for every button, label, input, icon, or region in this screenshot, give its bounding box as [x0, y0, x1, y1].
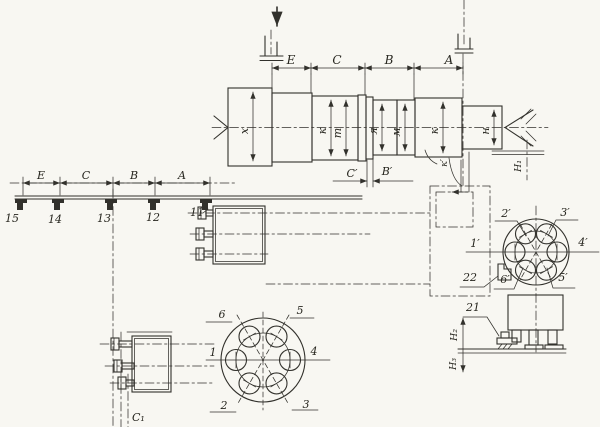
dog-number-15: 15: [5, 212, 19, 225]
tailstock-height-reference: H₁: [492, 140, 544, 180]
carriage-outline: [425, 150, 490, 296]
top-dim-label-c: C: [332, 53, 341, 67]
bottom-left-stop-block: C₁: [100, 332, 214, 427]
shaft-dim-letter: х: [238, 127, 251, 134]
shaft-dim-letter: т: [331, 128, 344, 138]
height-label-h3: H₃: [448, 358, 459, 371]
rear-stop-base-unit: 21 H₂ H₃: [448, 295, 566, 372]
dog-number-21: 21: [465, 301, 480, 314]
shaft-dim-letter-k-prime: к′: [439, 158, 450, 167]
tailstock-center-icon: [505, 110, 533, 146]
top-left-stop-bracket: [260, 30, 283, 61]
dim-label-b-prime: B′: [381, 165, 393, 178]
rear-pos-label-2: 2′: [500, 207, 511, 220]
top-right-stop-bracket: [455, 0, 473, 53]
front-pos-label-5: 5: [297, 304, 304, 317]
dim-label-c-prime: C′: [347, 167, 358, 180]
trip-dog-12: [148, 199, 160, 210]
rear-pos-label-4: 4′: [577, 236, 588, 249]
dog-number-11: 11: [190, 206, 204, 219]
rail-dim-label-b: B: [129, 169, 138, 182]
trip-dog-15: [15, 199, 27, 210]
dog-number-13: 13: [97, 212, 111, 225]
height-label-h2: H₂: [449, 329, 460, 342]
dim-label-c1: C₁: [132, 411, 145, 424]
height-label-h1: H₁: [513, 160, 524, 173]
shaft-dim-letter: м: [390, 127, 403, 136]
drawing-canvas: E C B A х к т я м к н к′: [0, 0, 600, 427]
top-dim-label-a: A: [444, 53, 454, 67]
rail-dim-label-c: C: [82, 169, 91, 182]
trip-dog-rail: E C B A 15 14 13 12 11: [5, 169, 362, 427]
trip-dog-14: [52, 199, 64, 210]
front-pos-label-6: 6: [219, 308, 226, 321]
dog-number-22: 22: [462, 271, 477, 284]
shaft-dim-letter: к: [428, 127, 441, 134]
base-leg: [529, 330, 538, 345]
base-trip-dog-21: [497, 338, 517, 344]
rear-pos-label-1: 1′: [470, 237, 480, 250]
trip-dog-13: [105, 199, 117, 210]
top-dim-label-e: E: [286, 53, 296, 67]
dog-number-12: 12: [146, 211, 160, 224]
lathe-setup-diagram: E C B A х к т я м к н к′: [0, 0, 600, 427]
front-turret-view: 6 5 1 4 2 3: [206, 304, 330, 412]
dog-hatching: [498, 344, 512, 349]
leg-foot: [545, 345, 563, 349]
rear-pos-label-3: 3′: [560, 206, 570, 219]
c-b-prime-dimension: C′ B′: [333, 158, 413, 187]
front-pos-label-2: 2: [220, 399, 228, 412]
base-leg: [548, 330, 557, 344]
center-stop-block: [188, 206, 430, 284]
front-pos-label-3: 3: [303, 398, 310, 411]
shaft-section: [228, 88, 272, 166]
dog-number-14: 14: [48, 213, 62, 226]
rail-dim-label-e: E: [36, 169, 45, 182]
front-pos-label-4: 4: [310, 345, 318, 358]
shaft-ring: [358, 95, 366, 161]
rear-pos-label-5: 5′: [558, 271, 568, 284]
rail-dim-label-a: A: [177, 169, 186, 182]
front-pos-label-1: 1: [210, 346, 217, 359]
shaft-dim-letter: я: [367, 127, 380, 134]
workpiece-shaft: х к т я м к н к′: [212, 54, 548, 186]
top-dim-label-b: B: [384, 53, 394, 67]
shaft-dim-letter: к: [316, 127, 329, 134]
shaft-dim-letter: н: [479, 127, 492, 134]
leg-foot: [525, 345, 543, 349]
